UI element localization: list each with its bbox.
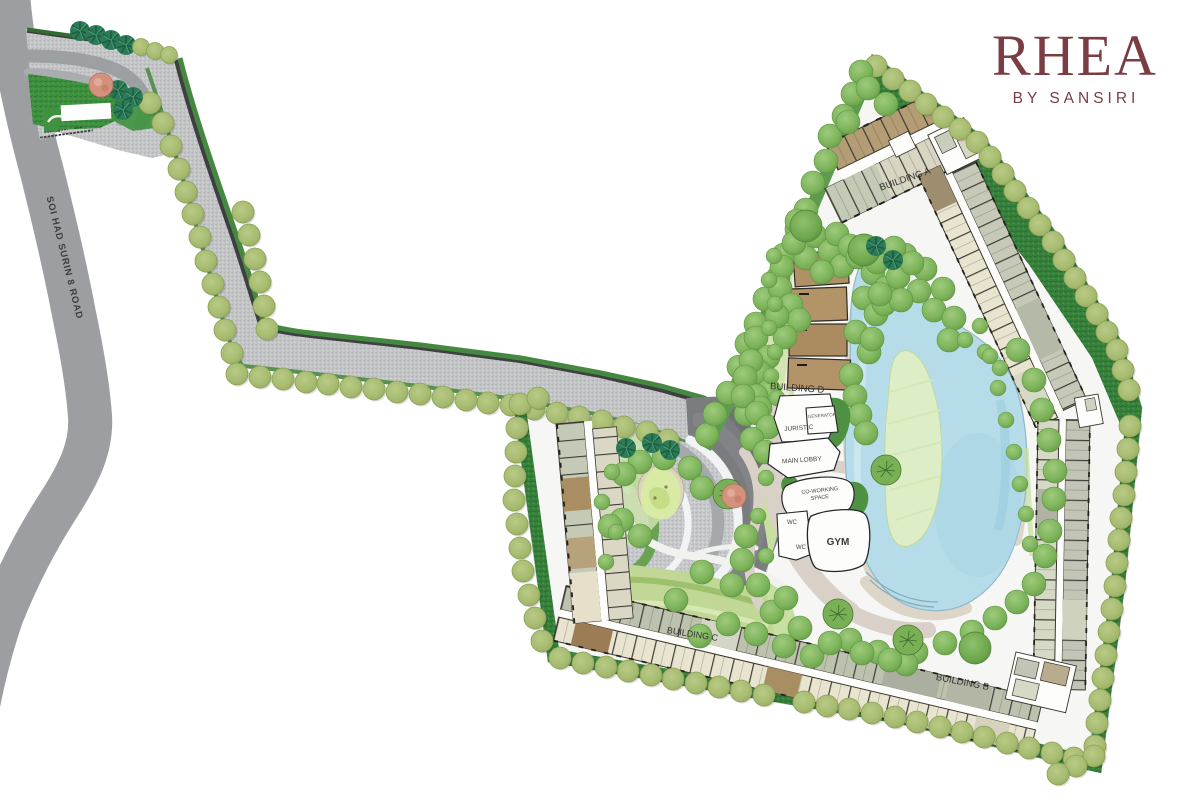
svg-text:BY SANSIRI: BY SANSIRI xyxy=(1013,90,1140,107)
svg-text:WC: WC xyxy=(787,520,798,526)
svg-text:GYM: GYM xyxy=(827,537,850,548)
svg-text:WC: WC xyxy=(796,545,807,551)
svg-text:RHEA: RHEA xyxy=(992,23,1158,88)
